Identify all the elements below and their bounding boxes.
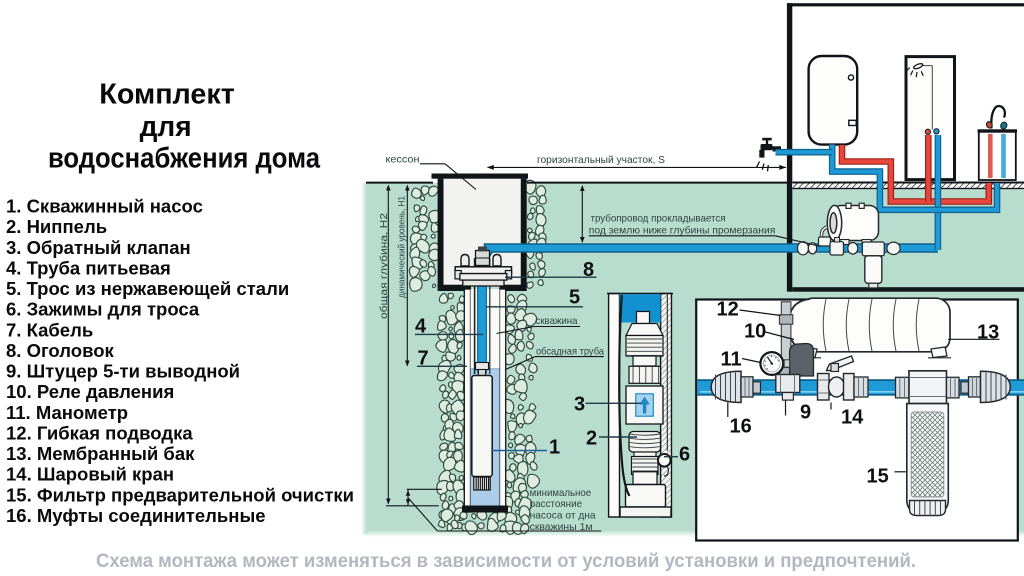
svg-text:6. Зажимы для троса: 6. Зажимы для троса — [6, 299, 200, 320]
svg-text:7: 7 — [418, 348, 429, 370]
svg-text:14. Шаровый кран: 14. Шаровый кран — [6, 464, 174, 485]
svg-text:трубопровод прокладывается: трубопровод прокладывается — [591, 213, 726, 225]
svg-text:Схема монтажа может изменяться: Схема монтажа может изменяться в зависим… — [96, 551, 916, 572]
svg-text:горизонтальный участок, S: горизонтальный участок, S — [537, 154, 665, 166]
svg-text:13. Мембранный бак: 13. Мембранный бак — [6, 443, 195, 464]
svg-text:расстояние: расстояние — [530, 498, 583, 510]
svg-text:9. Штуцер 5-ти выводной: 9. Штуцер 5-ти выводной — [6, 361, 240, 382]
svg-text:общая глубина, Н2: общая глубина, Н2 — [378, 213, 390, 319]
svg-text:3: 3 — [574, 394, 585, 416]
svg-text:15: 15 — [867, 466, 889, 488]
svg-text:скважина: скважина — [536, 315, 578, 327]
svg-text:11: 11 — [721, 349, 742, 371]
svg-text:12: 12 — [717, 299, 739, 321]
svg-text:обсадная труба: обсадная труба — [536, 346, 604, 358]
svg-text:6: 6 — [679, 444, 690, 466]
svg-text:11. Манометр: 11. Манометр — [6, 402, 128, 423]
svg-text:скважины 1м: скважины 1м — [530, 521, 593, 533]
svg-text:14: 14 — [841, 407, 864, 429]
svg-text:13: 13 — [977, 322, 999, 344]
svg-text:4: 4 — [415, 316, 427, 338]
svg-text:водоснабжения дома: водоснабжения дома — [48, 143, 321, 175]
svg-text:минимальное: минимальное — [530, 487, 592, 499]
svg-text:15. Фильтр предварительной очи: 15. Фильтр предварительной очистки — [6, 484, 354, 505]
svg-text:1. Скважинный насос: 1. Скважинный насос — [6, 196, 203, 217]
svg-text:10: 10 — [744, 321, 766, 343]
svg-text:12. Гибкая подводка: 12. Гибкая подводка — [6, 422, 193, 443]
svg-text:8: 8 — [583, 259, 594, 281]
svg-text:для: для — [140, 111, 192, 143]
svg-text:насоса от дна: насоса от дна — [530, 510, 596, 522]
svg-text:8. Оголовок: 8. Оголовок — [6, 340, 114, 361]
svg-text:под землю ниже глубины про: под землю ниже глубины промерзания — [589, 225, 776, 237]
svg-text:кессон: кессон — [386, 154, 420, 166]
svg-text:3. Обратный клапан: 3. Обратный клапан — [6, 237, 191, 258]
svg-text:16: 16 — [730, 416, 752, 438]
svg-text:Комплект: Комплект — [99, 79, 235, 111]
svg-text:10. Реле давления: 10. Реле давления — [6, 381, 174, 402]
svg-text:2: 2 — [586, 428, 597, 450]
svg-text:2. Ниппель: 2. Ниппель — [6, 216, 107, 237]
svg-text:9: 9 — [800, 402, 811, 424]
svg-text:5. Трос из нержавеющей стали: 5. Трос из нержавеющей стали — [6, 278, 289, 299]
svg-text:динамический уровень, Н1: динамический уровень, Н1 — [397, 196, 408, 298]
svg-text:4. Труба питьевая: 4. Труба питьевая — [6, 257, 171, 278]
svg-text:7. Кабель: 7. Кабель — [6, 319, 93, 340]
svg-text:1: 1 — [549, 437, 560, 459]
svg-text:5: 5 — [569, 287, 580, 309]
svg-text:16. Муфты соединительные: 16. Муфты соединительные — [6, 505, 266, 526]
